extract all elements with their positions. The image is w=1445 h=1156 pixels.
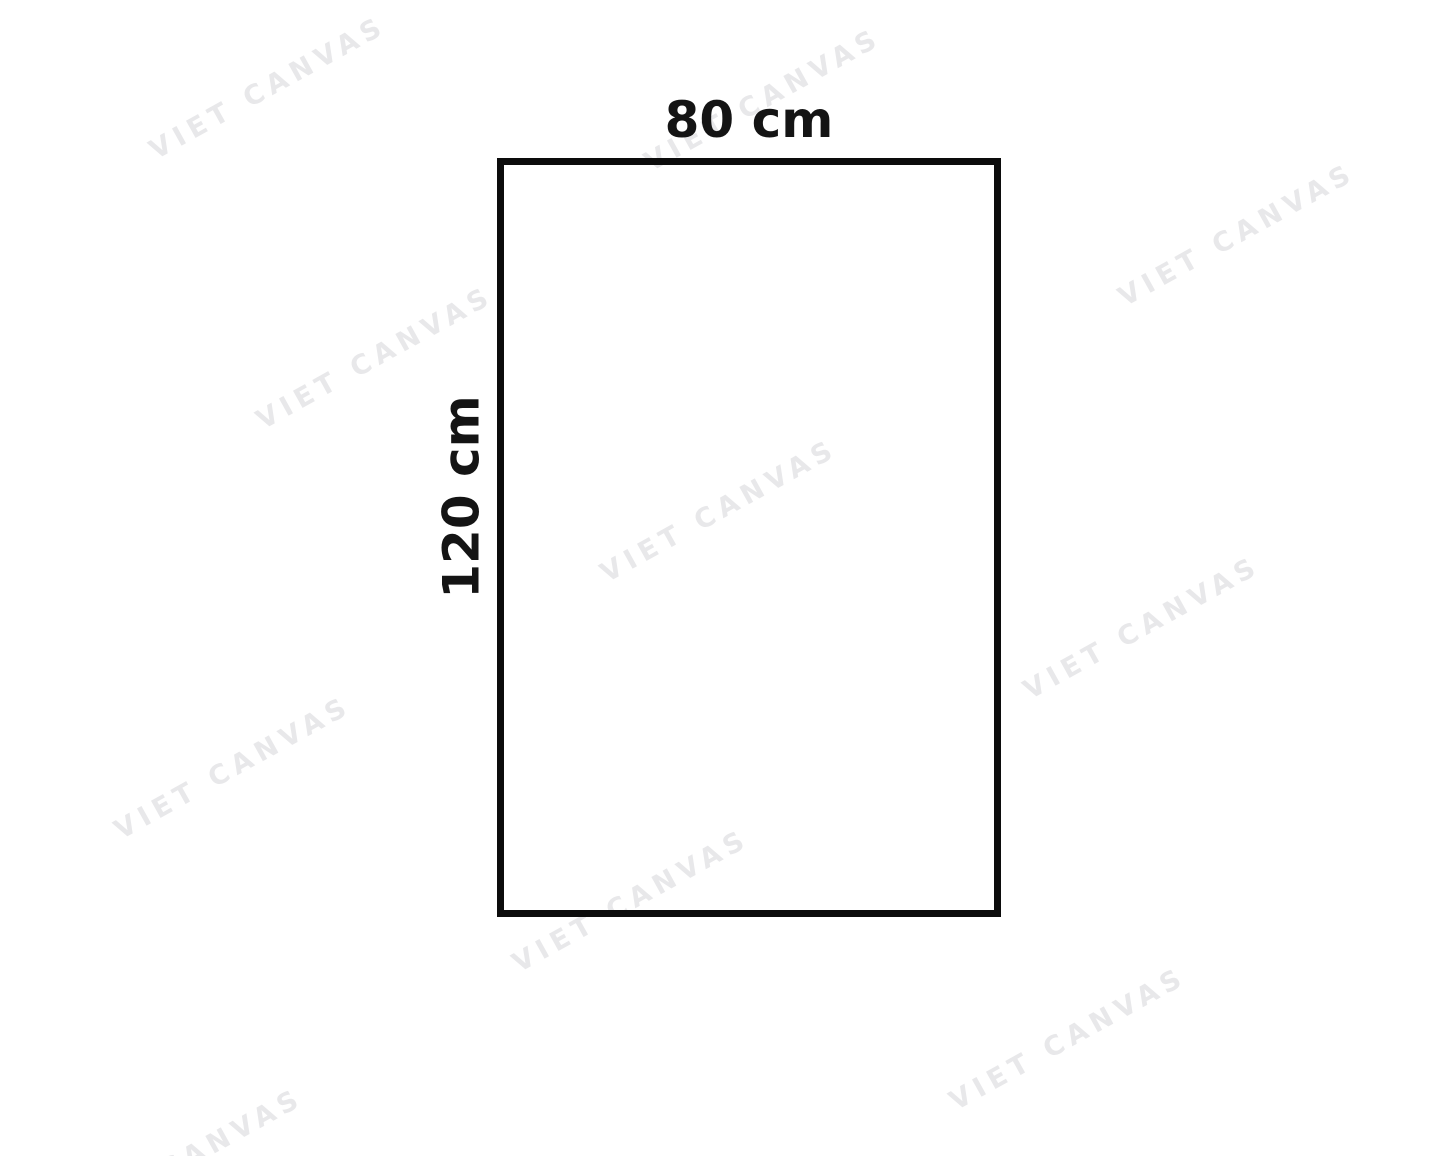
watermark-text: VIET CANVAS: [1018, 550, 1266, 706]
watermark-text: VIET CANVAS: [1113, 157, 1361, 313]
watermark-text: VIET CANVAS: [109, 690, 357, 846]
watermark-text: VIET CANVAS: [144, 10, 392, 166]
height-dimension-label: 120 cm: [433, 395, 491, 599]
width-dimension-label: 80 cm: [497, 92, 1001, 150]
canvas-outline-rectangle: [497, 158, 1001, 917]
product-dimension-diagram: VIET CANVASVIET CANVASVIET CANVASVIET CA…: [0, 0, 1445, 1156]
watermark-text: VIET CANVAS: [944, 961, 1192, 1117]
watermark-text: VIET CANVAS: [61, 1082, 309, 1156]
